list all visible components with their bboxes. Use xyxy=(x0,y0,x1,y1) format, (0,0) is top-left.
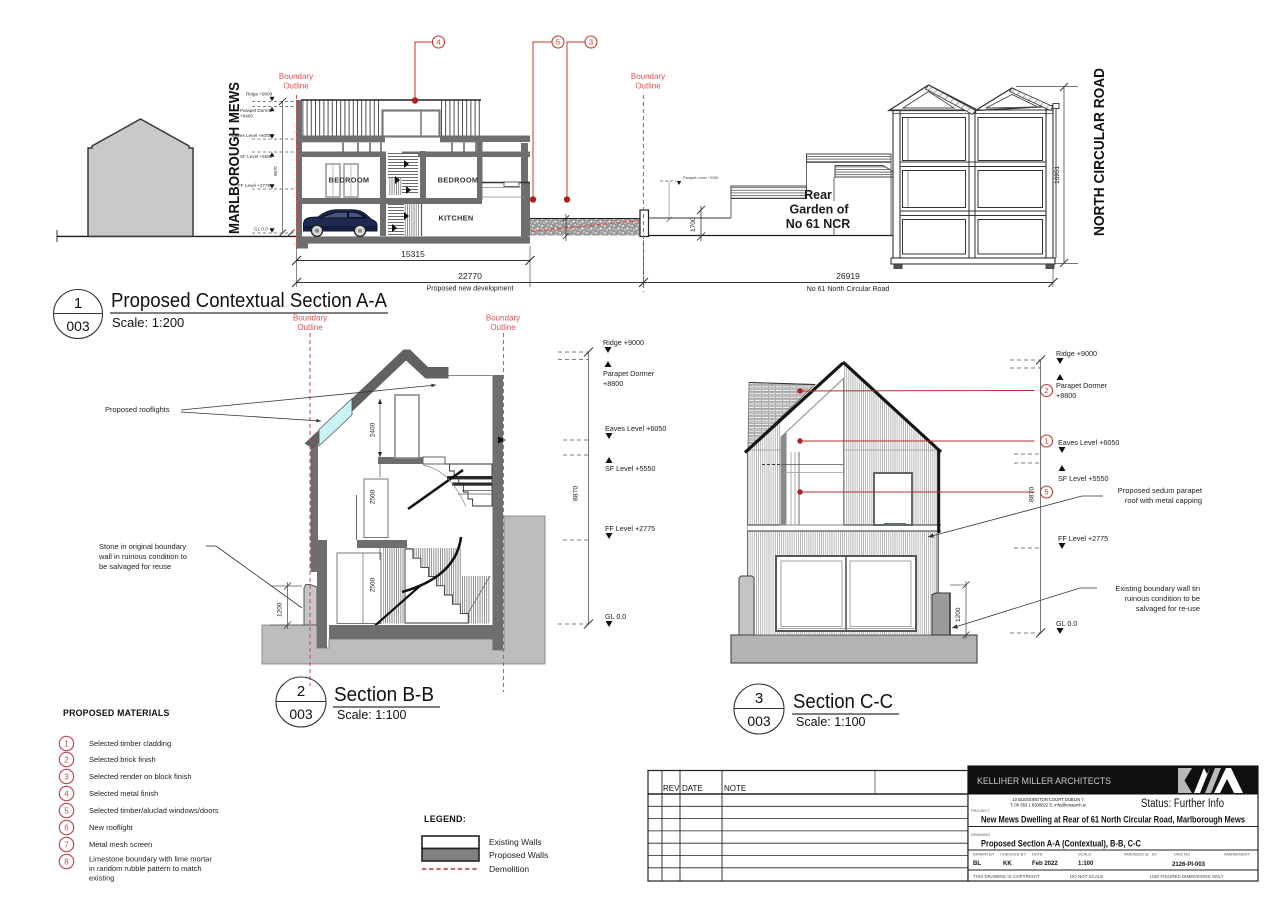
svg-text:Ridge +9000: Ridge +9000 xyxy=(603,338,644,347)
svg-text:Limestone boundary with lime m: Limestone boundary with lime mortar xyxy=(89,855,212,864)
svg-text:Boundary: Boundary xyxy=(279,72,313,81)
svg-text:5: 5 xyxy=(64,806,69,815)
svg-text:7: 7 xyxy=(64,840,69,849)
svg-text:Outline: Outline xyxy=(283,82,309,91)
svg-text:Parapet Level +3100: Parapet Level +3100 xyxy=(683,176,718,180)
svg-text:AMENDED at: AMENDED at xyxy=(1124,852,1149,857)
svg-text:10951: 10951 xyxy=(1054,166,1061,184)
svg-text:Proposed Contextual Section A-: Proposed Contextual Section A-A xyxy=(111,290,388,312)
svg-text:DRG NO: DRG NO xyxy=(1174,852,1190,857)
svg-text:Eaves Level +6050: Eaves Level +6050 xyxy=(605,424,666,433)
svg-text:2500: 2500 xyxy=(370,577,377,592)
svg-text:Scale: 1:100: Scale: 1:100 xyxy=(337,708,407,722)
svg-text:CHECKED BY: CHECKED BY xyxy=(1000,852,1026,857)
svg-text:SF Level +5550: SF Level +5550 xyxy=(240,154,273,159)
svg-text:Outline: Outline xyxy=(635,82,661,91)
svg-text:DATE: DATE xyxy=(682,784,703,793)
svg-text:Boundary: Boundary xyxy=(293,314,327,323)
svg-text:THIS DRAWING IS COPYRIGHT: THIS DRAWING IS COPYRIGHT xyxy=(973,874,1040,879)
svg-text:Scale: 1:100: Scale: 1:100 xyxy=(796,715,866,729)
svg-text:SCALE: SCALE xyxy=(1078,852,1091,857)
svg-text:DO NOT SCALE: DO NOT SCALE xyxy=(1070,874,1103,879)
svg-text:1: 1 xyxy=(74,295,82,312)
svg-text:Section B-B: Section B-B xyxy=(334,684,434,706)
svg-text:Outline: Outline xyxy=(297,323,323,332)
svg-text:Outline: Outline xyxy=(490,323,516,332)
svg-text:Selected metal finish: Selected metal finish xyxy=(89,789,158,798)
svg-text:Proposed Section A-A (Contextu: Proposed Section A-A (Contextual), B-B, … xyxy=(981,839,1141,850)
svg-text:Parapet Dormer: Parapet Dormer xyxy=(1056,381,1108,390)
svg-text:+8800: +8800 xyxy=(603,379,623,388)
svg-text:1:100: 1:100 xyxy=(1078,861,1094,867)
svg-text:2: 2 xyxy=(1044,386,1048,395)
svg-text:15315: 15315 xyxy=(401,249,425,259)
svg-text:1200: 1200 xyxy=(955,607,962,622)
svg-text:+8400: +8400 xyxy=(240,114,253,119)
svg-text:Selected timber/aluclad window: Selected timber/aluclad windows/doors xyxy=(89,806,219,815)
svg-text:8870: 8870 xyxy=(1029,487,1036,502)
svg-text:4: 4 xyxy=(64,789,69,798)
svg-text:PROJECT: PROJECT xyxy=(971,808,990,813)
svg-text:1700: 1700 xyxy=(690,217,697,232)
svg-text:GL 0.0: GL 0.0 xyxy=(254,227,268,232)
svg-text:1: 1 xyxy=(64,739,69,748)
svg-text:FF Level +2775: FF Level +2775 xyxy=(605,524,655,533)
svg-text:Demolition: Demolition xyxy=(489,864,529,874)
svg-text:LEGEND:: LEGEND: xyxy=(424,814,466,824)
svg-text:Ridge +9000: Ridge +9000 xyxy=(1056,349,1097,358)
svg-text:KITCHEN: KITCHEN xyxy=(439,214,474,223)
svg-text:2500: 2500 xyxy=(370,489,377,504)
svg-text:salvaged for re-use: salvaged for re-use xyxy=(1136,604,1200,613)
svg-text:Metal mesh screen: Metal mesh screen xyxy=(89,840,152,849)
svg-text:2126-PI-003: 2126-PI-003 xyxy=(1172,862,1206,868)
svg-text:Selected timber cladding: Selected timber cladding xyxy=(89,739,171,748)
svg-text:1200: 1200 xyxy=(277,602,284,617)
svg-text:3: 3 xyxy=(589,38,593,47)
svg-text:22770: 22770 xyxy=(458,271,482,281)
svg-text:Rear: Rear xyxy=(804,188,832,202)
svg-text:New rooflight: New rooflight xyxy=(89,823,134,832)
svg-text:No 61 North Circular Road: No 61 North Circular Road xyxy=(807,286,890,293)
svg-text:Garden of: Garden of xyxy=(789,203,849,217)
svg-text:GL 0.0: GL 0.0 xyxy=(1056,619,1077,628)
svg-text:Boundary: Boundary xyxy=(486,314,520,323)
svg-text:26919: 26919 xyxy=(836,271,860,281)
svg-text:Ridge +9000: Ridge +9000 xyxy=(246,92,273,97)
svg-text:BL: BL xyxy=(973,861,981,867)
svg-text:SF Level +5550: SF Level +5550 xyxy=(605,464,656,473)
svg-text:NOTE: NOTE xyxy=(724,784,746,793)
svg-text:Status: Further Info: Status: Further Info xyxy=(1141,798,1224,810)
svg-text:No 61 NCR: No 61 NCR xyxy=(786,217,851,231)
svg-text:Selected brick finish: Selected brick finish xyxy=(89,755,156,764)
svg-text:8870: 8870 xyxy=(573,486,580,501)
svg-text:Feb 2022: Feb 2022 xyxy=(1032,861,1058,867)
svg-text:PROPOSED MATERIALS: PROPOSED MATERIALS xyxy=(63,708,170,718)
svg-text:6: 6 xyxy=(64,823,69,832)
svg-text:FF Level +2775: FF Level +2775 xyxy=(238,183,270,188)
svg-text:1: 1 xyxy=(1044,437,1048,446)
svg-text:Boundary: Boundary xyxy=(631,72,665,81)
svg-text:T: 00 353 1 8308822 E: i: T: 00 353 1 8308822 E: info@kmaarch.ie xyxy=(1010,803,1087,808)
svg-text:DRAWN BY: DRAWN BY xyxy=(973,852,995,857)
svg-text:SF Level +5550: SF Level +5550 xyxy=(1058,474,1109,483)
svg-text:5: 5 xyxy=(556,38,560,47)
svg-text:003: 003 xyxy=(747,713,771,729)
svg-text:Selected render on block finis: Selected render on block finish xyxy=(89,772,192,781)
svg-text:3: 3 xyxy=(64,772,69,781)
svg-text:Existing Walls: Existing Walls xyxy=(489,837,542,847)
svg-text:NORTH CIRCULAR ROAD: NORTH CIRCULAR ROAD xyxy=(1091,68,1108,236)
svg-text:8870: 8870 xyxy=(273,166,278,176)
svg-text:5: 5 xyxy=(1044,488,1048,497)
svg-text:Proposed sedum parapet: Proposed sedum parapet xyxy=(1118,486,1203,495)
svg-text:DRAWING: DRAWING xyxy=(971,832,990,837)
svg-text:Proposed rooflights: Proposed rooflights xyxy=(105,405,170,414)
svg-text:in random rubble pattern to ma: in random rubble pattern to match xyxy=(89,864,202,873)
svg-text:DATE: DATE xyxy=(1032,852,1043,857)
svg-text:Stone in original boundary: Stone in original boundary xyxy=(99,542,186,551)
svg-text:2: 2 xyxy=(64,755,69,764)
svg-text:003: 003 xyxy=(66,318,90,334)
svg-text:2: 2 xyxy=(297,683,305,700)
svg-text:KELLIHER MILLER ARCHITECTS: KELLIHER MILLER ARCHITECTS xyxy=(977,776,1111,786)
svg-text:KK: KK xyxy=(1003,861,1012,867)
svg-text:roof with metal capping: roof with metal capping xyxy=(1125,496,1202,505)
svg-text:Scale: 1:200: Scale: 1:200 xyxy=(112,315,184,330)
svg-text:BEDROOM: BEDROOM xyxy=(329,176,370,185)
svg-text:Parapet Dormer: Parapet Dormer xyxy=(603,369,655,378)
svg-text:FF Level +2775: FF Level +2775 xyxy=(1058,534,1108,543)
svg-text:Proposed new development: Proposed new development xyxy=(427,286,514,293)
svg-text:REV: REV xyxy=(663,784,680,793)
svg-text:10 BLESSINGTON COURT DU: 10 BLESSINGTON COURT DUBLIN 7 xyxy=(1012,797,1084,802)
svg-text:be salvaged for reuse: be salvaged for reuse xyxy=(99,562,171,571)
svg-text:Proposed Walls: Proposed Walls xyxy=(489,850,548,860)
svg-text:USE FIGURED DIMENSIONS ONLY: USE FIGURED DIMENSIONS ONLY xyxy=(1150,874,1224,879)
svg-text:Existing boundary wall tin: Existing boundary wall tin xyxy=(1115,584,1200,593)
svg-text:3: 3 xyxy=(755,690,763,707)
svg-text:Eaves Level +6050: Eaves Level +6050 xyxy=(1058,438,1119,447)
svg-text:BEDROOM: BEDROOM xyxy=(438,176,479,185)
svg-text:Eaves Level +6050: Eaves Level +6050 xyxy=(232,133,272,138)
svg-text:8: 8 xyxy=(64,857,69,866)
svg-text:003: 003 xyxy=(289,706,313,722)
svg-text:Section C-C: Section C-C xyxy=(793,691,893,713)
svg-text:4: 4 xyxy=(436,38,440,47)
svg-text:2400: 2400 xyxy=(370,422,377,437)
svg-text:GL 0.0: GL 0.0 xyxy=(605,612,626,621)
svg-text:+8800: +8800 xyxy=(1056,391,1076,400)
svg-text:wall in ruinous condition to: wall in ruinous condition to xyxy=(98,552,187,561)
svg-text:existing: existing xyxy=(89,874,114,883)
svg-text:BY: BY xyxy=(1152,852,1158,857)
svg-text:AMENDMENT: AMENDMENT xyxy=(1224,852,1250,857)
svg-text:New Mews Dwelling at Rear of 6: New Mews Dwelling at Rear of 61 North Ci… xyxy=(981,815,1245,826)
svg-text:ruinous condition to be: ruinous condition to be xyxy=(1125,594,1200,603)
svg-text:Parapet Dormer: Parapet Dormer xyxy=(240,108,273,113)
